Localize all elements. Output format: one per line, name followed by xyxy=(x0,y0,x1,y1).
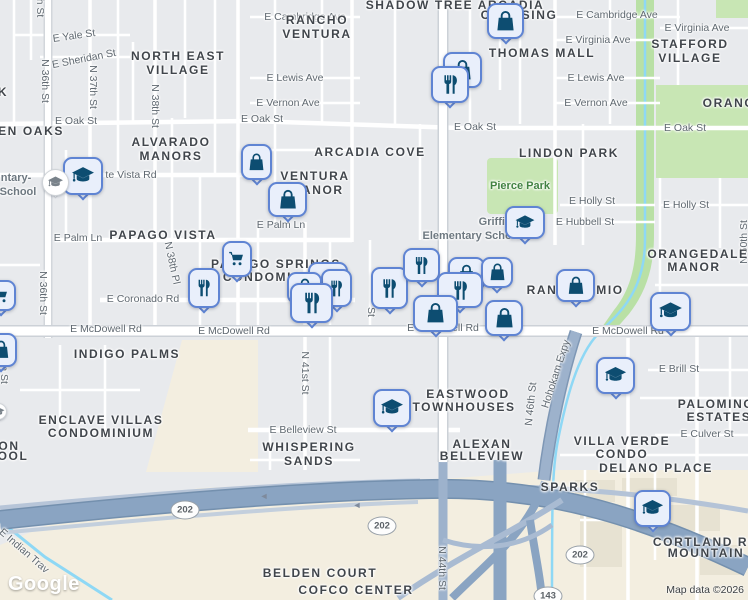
graduation-cap-icon xyxy=(69,162,97,190)
restaurant-marker[interactable] xyxy=(290,283,333,332)
street-label: E Oak St xyxy=(664,122,706,134)
neighborhood-label: PALOMINO xyxy=(678,397,748,411)
neighborhood-label: CONDO xyxy=(596,447,649,461)
neighborhood-label: K xyxy=(0,85,8,99)
street-label: E Holly St xyxy=(569,195,615,207)
graduation-cap-icon xyxy=(513,211,537,235)
street-label: N 37th St xyxy=(87,65,99,109)
shopping-bag-marker[interactable] xyxy=(487,3,524,48)
neighborhood-label: ARCADIA COVE xyxy=(314,145,425,159)
restaurant-marker[interactable] xyxy=(188,268,220,317)
neighborhood-label: SANDS xyxy=(284,454,334,468)
shopping-bag-icon xyxy=(492,8,519,35)
school-marker[interactable] xyxy=(596,357,635,403)
street-label: E Lewis Ave xyxy=(266,72,323,84)
neighborhood-label: LINDON PARK xyxy=(519,146,619,160)
shopping-bag-marker[interactable] xyxy=(268,182,307,226)
highway-shield: 202 xyxy=(171,501,200,520)
street-label: E Lewis Ave xyxy=(567,72,624,84)
street-label: E Oak St xyxy=(454,121,496,133)
neighborhood-label: MIO xyxy=(596,283,623,297)
cart-marker[interactable] xyxy=(0,280,16,320)
map-attribution: Map data ©2026 xyxy=(666,584,744,596)
street-label: E McDowell Rd xyxy=(198,325,270,337)
shopping-bag-icon xyxy=(0,338,13,362)
graduation-cap-icon xyxy=(46,173,65,192)
google-logo[interactable]: Google xyxy=(8,573,80,596)
street-label: N 36th St xyxy=(39,59,51,103)
fork-knife-icon xyxy=(376,275,403,302)
street-label: E Virginia Ave xyxy=(665,22,730,34)
street-label: E Holly St xyxy=(663,199,709,211)
street-label: h St xyxy=(34,0,46,17)
restaurant-marker[interactable] xyxy=(403,248,440,291)
poi-label: School xyxy=(0,186,36,198)
restaurant-marker[interactable] xyxy=(431,66,469,112)
neighborhood-label: WHISPERING xyxy=(262,440,355,454)
street-label: N 41st St xyxy=(299,351,311,394)
street-label: E Vernon Ave xyxy=(564,97,627,109)
street-label: E Hubbell St xyxy=(556,216,614,228)
ramp-direction-arrow-icon: ◄ xyxy=(260,491,269,501)
neighborhood-label: SPARKS xyxy=(541,480,600,494)
street-label: E Culver St xyxy=(680,428,733,440)
street-label: N 38th St xyxy=(149,84,161,128)
neighborhood-label: BELLEVIEW xyxy=(440,449,524,463)
shopping-bag-marker[interactable] xyxy=(0,333,17,376)
street-label: E McDowell Rd xyxy=(70,323,142,335)
shopping-bag-marker[interactable] xyxy=(556,269,595,311)
highway-shield: 202 xyxy=(368,517,397,536)
neighborhood-label: ORANGEDALE xyxy=(647,247,748,261)
street-label: N 36th St xyxy=(37,271,49,315)
street-label: E Virginia Ave xyxy=(566,34,631,46)
shopping-bag-icon xyxy=(245,151,268,174)
school-marker[interactable] xyxy=(373,389,411,436)
fork-knife-icon xyxy=(437,71,464,98)
neighborhood-label: VENTURA xyxy=(282,27,351,41)
street-label: E Belleview St xyxy=(269,424,336,436)
neighborhood-label: MANOR xyxy=(667,260,720,274)
street-label: E Palm Ln xyxy=(54,232,102,244)
neighborhood-label: STAFFORD xyxy=(651,37,728,51)
neighborhood-label: INDIGO PALMS xyxy=(74,347,180,361)
neighborhood-label: PAPAGO VISTA xyxy=(109,228,216,242)
street-label: E Vernon Ave xyxy=(256,97,319,109)
shopping-bag-marker[interactable] xyxy=(485,300,523,345)
fork-knife-icon xyxy=(192,276,216,300)
neighborhood-label: BELDEN COURT xyxy=(263,566,378,580)
school-circle-marker[interactable] xyxy=(0,403,7,429)
cart-marker[interactable] xyxy=(222,241,252,286)
neighborhood-label: RANCHO xyxy=(286,13,348,27)
street-label: E Cambridge Ave xyxy=(576,9,658,21)
fork-knife-icon xyxy=(409,253,434,278)
graduation-cap-icon xyxy=(639,495,666,522)
school-marker[interactable] xyxy=(634,490,671,536)
neighborhood-label: EN OAKS xyxy=(0,124,64,138)
fork-knife-icon xyxy=(297,288,327,318)
school-marker[interactable] xyxy=(505,206,545,248)
highway-shield: 143 xyxy=(534,587,563,600)
shopping-bag-icon xyxy=(422,300,449,327)
neighborhood-label: MOUNTAIN xyxy=(668,546,745,560)
ramp-direction-arrow-icon: ◄ xyxy=(353,500,362,510)
street-label: E Oak St xyxy=(241,113,283,125)
street-label: E Coronado Rd xyxy=(107,293,179,305)
shopping-bag-icon xyxy=(564,274,588,298)
school-marker[interactable] xyxy=(63,157,103,204)
school-marker[interactable] xyxy=(650,292,691,340)
park-label: Pierce Park xyxy=(490,180,550,192)
neighborhood-label: ALVARADO xyxy=(131,135,210,149)
street-label: N 44th St xyxy=(436,546,448,590)
neighborhood-label: NORTH EAST xyxy=(131,49,225,63)
graduation-cap-icon xyxy=(378,394,406,422)
neighborhood-label: ENCLAVE VILLAS xyxy=(39,413,164,427)
shopping-bag-icon xyxy=(275,187,301,213)
graduation-cap-icon xyxy=(656,297,685,326)
shopping-bag-icon xyxy=(491,305,518,332)
neighborhood-label: TOWNHOUSES xyxy=(412,400,515,414)
neighborhood-label: VILLAGE xyxy=(146,63,209,77)
neighborhood-label: EASTWOOD xyxy=(426,387,509,401)
street-label: E Brill St xyxy=(659,363,699,375)
graduation-cap-icon xyxy=(602,362,629,389)
highway-shield: 202 xyxy=(566,546,595,565)
map-canvas[interactable]: E Cambridge AveE Cambridge AveE Virginia… xyxy=(0,0,748,600)
school-circle-marker[interactable] xyxy=(42,169,69,205)
neighborhood-label: THOMAS MALL xyxy=(489,46,595,60)
neighborhood-label: MANORS xyxy=(140,149,203,163)
graduation-cap-icon xyxy=(0,405,6,419)
neighborhood-label: COFCO CENTER xyxy=(298,583,413,597)
neighborhood-label: OOL xyxy=(0,449,28,463)
shopping-bag-marker[interactable] xyxy=(413,295,458,341)
neighborhood-label: RAN xyxy=(527,283,558,297)
neighborhood-label: CONDOMINIUM xyxy=(48,426,154,440)
neighborhood-label: ORANG xyxy=(703,96,748,110)
neighborhood-label: VILLA VERDE xyxy=(574,434,671,448)
shopping-bag-icon xyxy=(486,261,509,284)
shopping-bag-marker[interactable] xyxy=(481,257,513,297)
neighborhood-label: VILLAGE xyxy=(658,51,721,65)
poi-label: ntary- xyxy=(1,172,32,184)
street-label: te Vista Rd xyxy=(105,169,156,181)
neighborhood-label: ESTATES xyxy=(687,410,748,424)
neighborhood-label: DELANO PLACE xyxy=(599,461,713,475)
neighborhood-label: VENTURA xyxy=(280,169,349,183)
shopping-cart-icon xyxy=(226,248,248,270)
shopping-cart-icon xyxy=(0,285,12,307)
